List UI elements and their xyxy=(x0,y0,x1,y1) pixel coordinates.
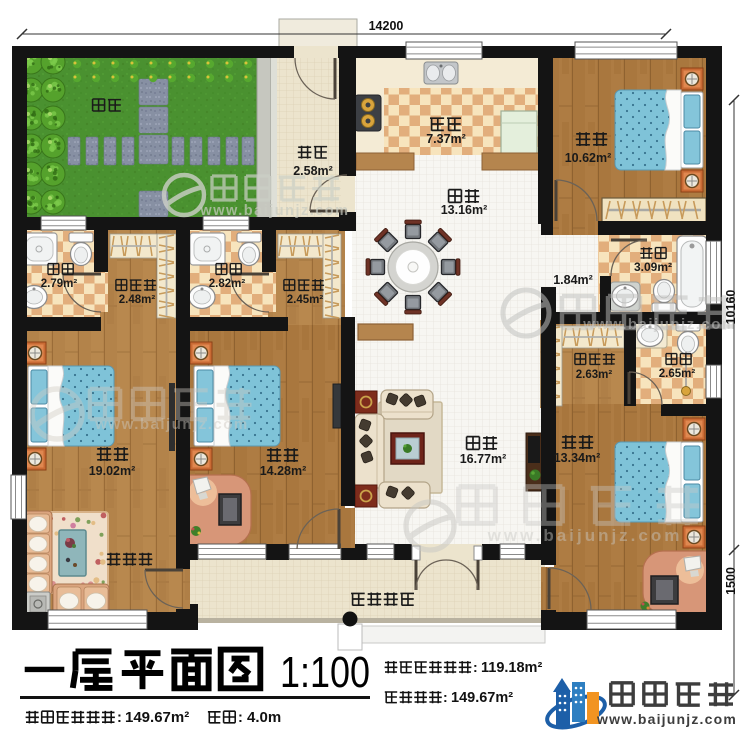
svg-text:1.84m²: 1.84m² xyxy=(553,273,593,287)
svg-text:2.82m²: 2.82m² xyxy=(209,278,246,290)
svg-text:www.baijunjz.com: www.baijunjz.com xyxy=(199,203,349,219)
svg-text:10.62m²: 10.62m² xyxy=(565,151,612,165)
svg-text:2.63m²: 2.63m² xyxy=(576,369,613,381)
svg-text::: : xyxy=(473,659,478,675)
svg-text:2.65m²: 2.65m² xyxy=(659,368,696,380)
svg-text:149.67m²: 149.67m² xyxy=(125,709,189,726)
svg-text:www.baijunjz.com: www.baijunjz.com xyxy=(596,711,737,727)
svg-text:16.77m²: 16.77m² xyxy=(460,452,507,466)
svg-text:19.02m²: 19.02m² xyxy=(89,464,136,478)
svg-text:1:100: 1:100 xyxy=(280,648,370,697)
svg-text:4.0m: 4.0m xyxy=(247,709,281,726)
svg-text:www.baijunjz.com: www.baijunjz.com xyxy=(94,416,248,433)
svg-text:3.09m²: 3.09m² xyxy=(634,260,672,274)
svg-text:14.28m²: 14.28m² xyxy=(260,464,307,478)
svg-text:14200: 14200 xyxy=(369,19,404,33)
svg-text:13.16m²: 13.16m² xyxy=(441,203,488,217)
svg-text:2.45m²: 2.45m² xyxy=(287,294,324,306)
svg-text:13.34m²: 13.34m² xyxy=(554,451,601,465)
svg-text:2.48m²: 2.48m² xyxy=(119,294,156,306)
svg-text:119.18m²: 119.18m² xyxy=(481,660,542,676)
svg-text:149.67m²: 149.67m² xyxy=(451,690,513,706)
svg-text:www.baijunjz.com: www.baijunjz.com xyxy=(582,316,736,333)
svg-text:10160: 10160 xyxy=(724,290,738,325)
svg-text:7.37m²: 7.37m² xyxy=(426,132,466,146)
svg-text:2.58m²: 2.58m² xyxy=(293,164,333,178)
svg-text:2.79m²: 2.79m² xyxy=(41,278,78,290)
svg-text:1500: 1500 xyxy=(724,567,738,595)
svg-text::: : xyxy=(238,710,243,726)
svg-text::: : xyxy=(117,710,122,726)
svg-text:www.baijunjz.com: www.baijunjz.com xyxy=(487,526,683,545)
svg-text::: : xyxy=(443,689,448,705)
